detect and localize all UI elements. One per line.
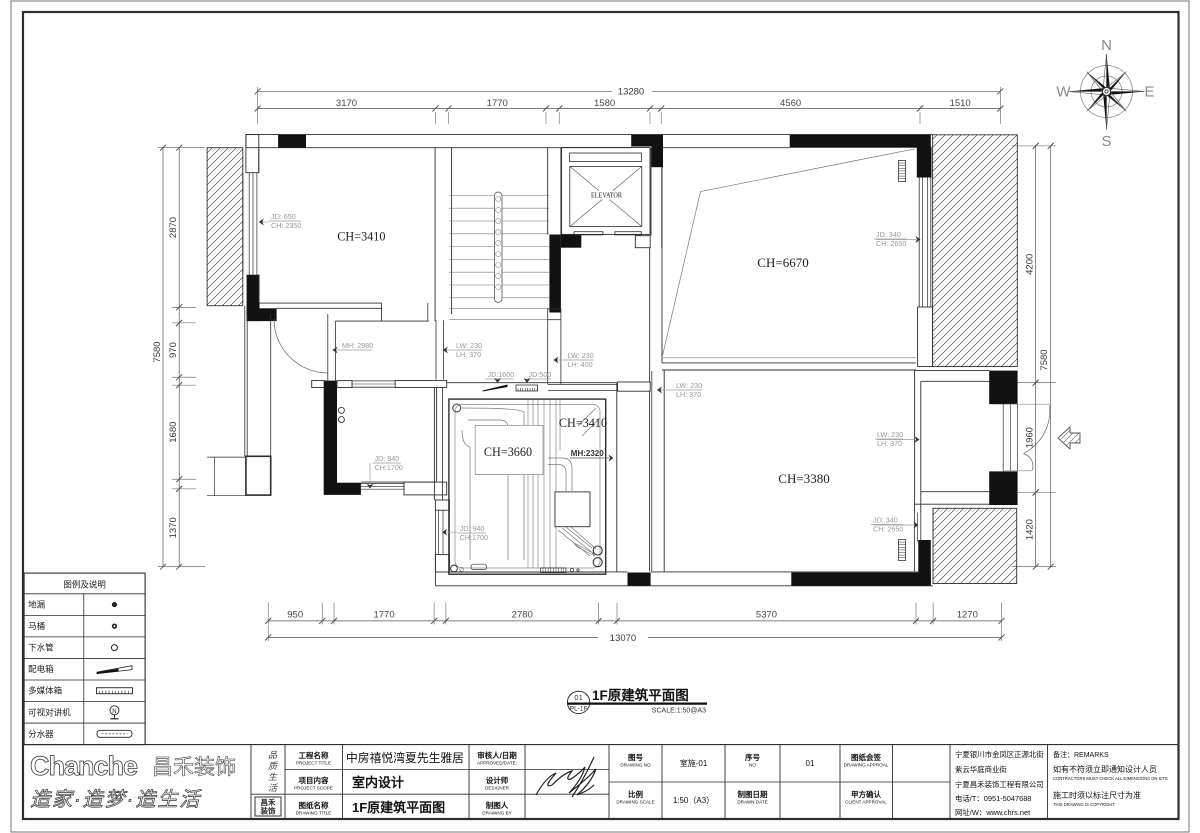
svg-text:设计师: 设计师 — [486, 775, 509, 785]
svg-text:JD:1600: JD:1600 — [488, 370, 515, 379]
svg-text:1770: 1770 — [487, 98, 508, 109]
svg-text:THIS DRAWING IS COPYRIGHT: THIS DRAWING IS COPYRIGHT — [1053, 802, 1115, 807]
svg-text:W: W — [1056, 84, 1071, 101]
svg-text:图例及说明: 图例及说明 — [63, 580, 106, 590]
svg-text:JD: 340: JD: 340 — [876, 230, 901, 239]
svg-text:可视对讲机: 可视对讲机 — [28, 707, 71, 717]
svg-text:CH=3410: CH=3410 — [337, 230, 385, 244]
svg-text:CH: 2350: CH: 2350 — [271, 221, 301, 230]
svg-text:ELEVATOR: ELEVATOR — [591, 192, 622, 200]
svg-text:室内设计: 室内设计 — [352, 775, 404, 790]
svg-text:1510: 1510 — [950, 98, 971, 109]
svg-text:生: 生 — [268, 772, 278, 782]
svg-text:MH: 2980: MH: 2980 — [342, 341, 373, 350]
svg-text:2870: 2870 — [168, 217, 179, 238]
svg-text:JD: 650: JD: 650 — [271, 212, 296, 221]
svg-text:DRAWN DATE: DRAWN DATE — [737, 800, 767, 805]
svg-text:LH: 370: LH: 370 — [456, 350, 481, 359]
svg-text:PROJECT TITLE: PROJECT TITLE — [296, 761, 331, 766]
svg-text:工程名称: 工程名称 — [299, 750, 329, 760]
svg-text:DRAWING TITLE: DRAWING TITLE — [296, 811, 332, 816]
svg-text:CH=3380: CH=3380 — [778, 471, 829, 486]
svg-text:CH=3410: CH=3410 — [559, 416, 607, 430]
svg-text:审核人/日期: 审核人/日期 — [477, 750, 517, 760]
svg-text:施工时须以标注尺寸为准: 施工时须以标注尺寸为准 — [1053, 790, 1141, 800]
svg-text:LW: 230: LW: 230 — [877, 430, 903, 439]
svg-text:PROJECT SCOPE: PROJECT SCOPE — [294, 786, 333, 791]
svg-text:室施-01: 室施-01 — [680, 758, 708, 768]
svg-text:1420: 1420 — [1025, 519, 1036, 540]
svg-text:1770: 1770 — [373, 610, 394, 621]
svg-text:JD: 340: JD: 340 — [873, 516, 898, 525]
svg-text:13280: 13280 — [618, 87, 644, 98]
svg-text:LH: 370: LH: 370 — [676, 390, 701, 399]
svg-text:宁夏银川市金凤区正源北街: 宁夏银川市金凤区正源北街 — [955, 750, 1044, 759]
svg-text:LW: 230: LW: 230 — [456, 341, 482, 350]
svg-text:CH: 2650: CH: 2650 — [873, 525, 903, 534]
svg-text:CH=3660: CH=3660 — [484, 445, 532, 459]
svg-text:DRAWING APPROAL: DRAWING APPROAL — [844, 763, 889, 768]
svg-text:N: N — [1101, 37, 1112, 54]
svg-text:1580: 1580 — [594, 98, 615, 109]
svg-text:下水管: 下水管 — [28, 643, 54, 653]
svg-text:JD: 940: JD: 940 — [460, 524, 485, 533]
svg-text:CH:1700: CH:1700 — [375, 463, 403, 472]
svg-text:1960: 1960 — [1025, 427, 1036, 448]
svg-text:01: 01 — [806, 759, 815, 768]
svg-text:E: E — [1144, 84, 1154, 101]
svg-text:2780: 2780 — [512, 610, 533, 621]
svg-text:1270: 1270 — [957, 610, 978, 621]
svg-text:紫云华庭商业街: 紫云华庭商业街 — [955, 765, 1007, 774]
svg-text:LW: 230: LW: 230 — [568, 351, 594, 360]
svg-text:DESIGNER: DESIGNER — [485, 786, 510, 791]
svg-text:品: 品 — [268, 750, 278, 760]
svg-text:图纸名称: 图纸名称 — [299, 800, 329, 810]
svg-text:造家·造梦·造生活: 造家·造梦·造生活 — [30, 789, 202, 811]
svg-text:多媒体箱: 多媒体箱 — [28, 686, 63, 696]
svg-text:01: 01 — [574, 693, 582, 702]
svg-text:1680: 1680 — [168, 422, 179, 443]
svg-text:S: S — [1101, 133, 1111, 150]
svg-text:LH: 370: LH: 370 — [877, 439, 902, 448]
svg-text:1F原建筑平面图: 1F原建筑平面图 — [592, 687, 689, 703]
svg-text:昌禾: 昌禾 — [261, 797, 276, 807]
svg-text:配电箱: 配电箱 — [28, 664, 54, 674]
svg-text:CH: 2650: CH: 2650 — [876, 239, 906, 248]
svg-text:1:50（A3）: 1:50（A3） — [673, 796, 714, 805]
svg-text:5370: 5370 — [756, 610, 777, 621]
svg-text:活: 活 — [268, 783, 278, 793]
svg-text:LH: 400: LH: 400 — [568, 360, 593, 369]
svg-text:制图人: 制图人 — [486, 800, 509, 810]
svg-text:JD:500: JD:500 — [529, 370, 552, 379]
svg-text:昌禾装饰: 昌禾装饰 — [152, 756, 236, 779]
svg-text:LW: 230: LW: 230 — [676, 381, 702, 390]
svg-text:电话/T：0951-5047688: 电话/T：0951-5047688 — [955, 794, 1031, 803]
svg-text:NO: NO — [749, 763, 756, 768]
svg-text:∅: ∅ — [459, 567, 464, 574]
svg-text:4200: 4200 — [1025, 254, 1036, 275]
svg-text:970: 970 — [168, 342, 179, 358]
svg-text:7580: 7580 — [1039, 349, 1050, 370]
svg-text:地漏: 地漏 — [28, 600, 46, 610]
svg-text:950: 950 — [287, 610, 303, 621]
svg-text:DRAWING BY: DRAWING BY — [482, 811, 511, 816]
svg-text:SCALE:1:50@A3: SCALE:1:50@A3 — [652, 708, 706, 715]
svg-text:质: 质 — [268, 761, 278, 771]
svg-text:1F原建筑平面图: 1F原建筑平面图 — [352, 800, 445, 815]
svg-text:CONTRACTORS MUST CHECK ALL DIM: CONTRACTORS MUST CHECK ALL DIMENSIONS ON… — [1053, 776, 1168, 781]
svg-text:图纸会签: 图纸会签 — [851, 752, 881, 762]
svg-text:网址/W：www.chrs.net: 网址/W：www.chrs.net — [955, 808, 1030, 817]
svg-text:4560: 4560 — [780, 98, 801, 109]
svg-text:马桶: 马桶 — [28, 621, 45, 631]
svg-text:宁夏昌禾装饰工程有限公司: 宁夏昌禾装饰工程有限公司 — [955, 780, 1044, 789]
svg-text:3170: 3170 — [336, 98, 357, 109]
svg-text:N: N — [112, 709, 116, 715]
svg-text:分水器: 分水器 — [28, 729, 54, 739]
svg-text:DRAWING NO: DRAWING NO — [620, 763, 651, 768]
svg-text:Chanche: Chanche — [30, 751, 138, 781]
svg-text:JD: 940: JD: 940 — [375, 454, 400, 463]
svg-text:中房禧悦湾夏先生雅居: 中房禧悦湾夏先生雅居 — [346, 751, 464, 765]
svg-text:1370: 1370 — [168, 517, 179, 538]
svg-text:甲方确认: 甲方确认 — [851, 789, 881, 799]
svg-text:CLIENT APPROVAL: CLIENT APPROVAL — [845, 800, 887, 805]
svg-text:CH=6670: CH=6670 — [757, 255, 808, 270]
svg-text:序号: 序号 — [745, 752, 760, 762]
svg-text:APPROVED/DATE:: APPROVED/DATE: — [477, 761, 517, 766]
svg-text:装饰: 装饰 — [260, 806, 276, 816]
svg-text:备注：REMARKS: 备注：REMARKS — [1053, 750, 1109, 759]
svg-text:DRAWING SCALE: DRAWING SCALE — [616, 800, 654, 805]
svg-text:项目内容: 项目内容 — [299, 775, 329, 785]
svg-text:MH:2320: MH:2320 — [571, 449, 604, 458]
svg-text:CH:1700: CH:1700 — [460, 533, 488, 542]
svg-text:图号: 图号 — [628, 753, 643, 762]
svg-text:制图日期: 制图日期 — [738, 789, 768, 799]
svg-text:13070: 13070 — [610, 633, 636, 644]
svg-text:如有不符须立即通知设计人员: 如有不符须立即通知设计人员 — [1053, 764, 1157, 774]
svg-text:PL-1F: PL-1F — [570, 706, 588, 713]
svg-text:7580: 7580 — [152, 341, 163, 362]
svg-text:比例: 比例 — [628, 789, 643, 799]
